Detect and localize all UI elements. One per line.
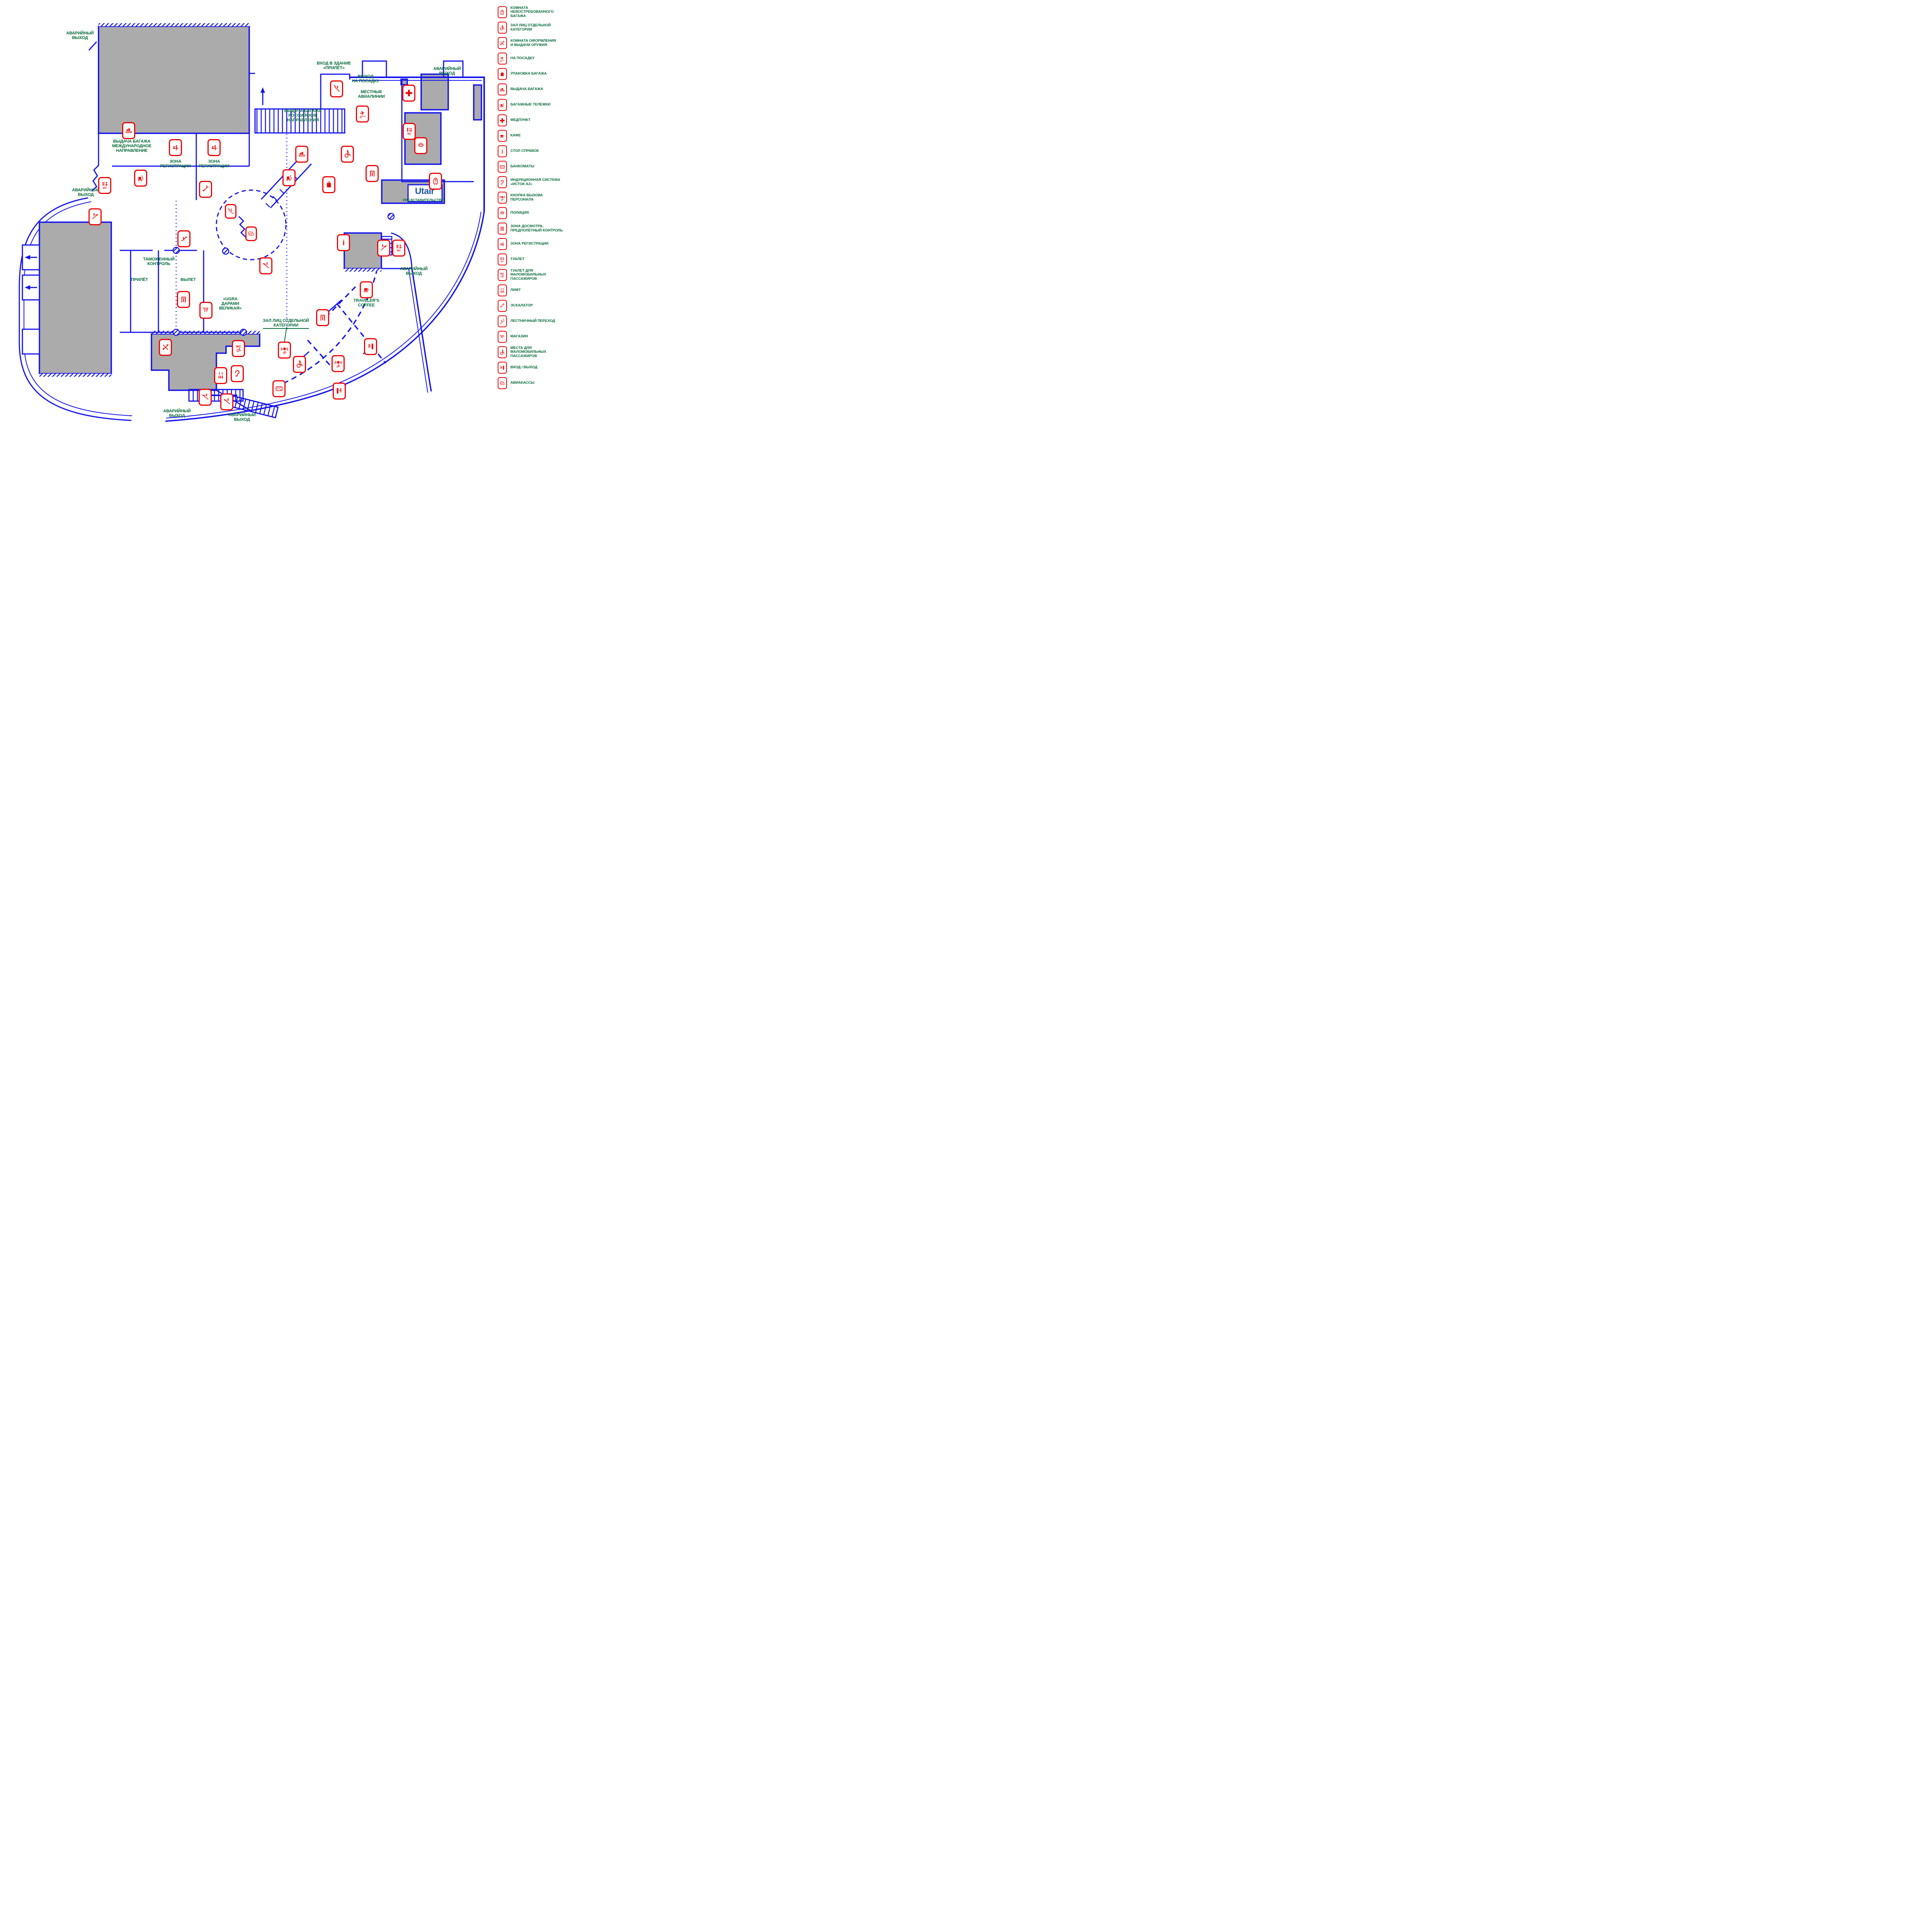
wheelchair-glyph <box>343 148 352 160</box>
escalator-down-icon <box>498 300 507 312</box>
legend-label: ИНДУКЦИОННАЯ СИСТЕМА «ИСТОК А2» <box>510 178 560 186</box>
ugra-shop: «UGRA ДАРАМИ ВЕЛИКАЯ» <box>219 297 241 311</box>
security-gate-icon-right <box>366 165 379 182</box>
plane-boarding-glyph: ✈№ <box>358 107 367 120</box>
utair-office: ПРЕДСТАВИТЕЛЬСТВО <box>403 199 444 202</box>
stairs-icon-bottom-1 <box>199 389 212 406</box>
legend-label: ПОЛИЦИЯ <box>510 211 529 215</box>
security-gate-glyph <box>179 293 189 306</box>
escalator-down-glyph <box>499 301 506 311</box>
exit-right-glyph <box>366 340 376 353</box>
escalator-up-icon <box>177 230 190 247</box>
checkin-icon-2 <box>207 139 221 156</box>
weapon-room-icon <box>159 339 172 356</box>
legend-label: НА ПОСАДКУ <box>510 56 534 60</box>
local-airlines: МЕСТНЫЕ АВИАЛИНИИ <box>358 90 384 99</box>
legend-item-13: КНОПКА ВЫЗОВА ПЕРСОНАЛА <box>498 192 600 204</box>
stairs-up-left-glyph <box>226 206 235 217</box>
legend-label: ЭСКАЛАТОР <box>510 304 533 308</box>
legend-label: КОМНАТА НЕВОСТРЕБОВАННОГО БАГАЖА <box>510 6 554 18</box>
legend-label: ЗАЛ ЛИЦ ОТДЕЛЬНОЙ КАТЕГОРИИ <box>510 24 551 32</box>
travelers-coffee: TRAVELER'S COFFEE <box>354 298 379 308</box>
stairs-left-glyph <box>222 395 232 408</box>
legend-item-4: ✈№НА ПОСАДКУ <box>498 53 600 65</box>
security-gate-glyph <box>499 224 506 233</box>
svg-text:?: ? <box>502 11 503 14</box>
security-person-icon-bottom <box>316 309 329 326</box>
svg-text:?: ? <box>434 180 436 184</box>
baggage-claim-intl-icon <box>122 122 135 139</box>
legend-item-20: ЭСКАЛАТОР <box>498 300 600 312</box>
legend-item-5: УПАКОВКА БАГАЖА <box>498 68 600 80</box>
airport-floor-plan: АВАРИЙНЫЙ ВЫХОДВХОД В ЗДАНИЕ «ПРИЛЁТ»ВЫХ… <box>0 0 603 426</box>
security-gate-icon-departure <box>177 291 190 308</box>
legend-label: ВХОД / ВЫХОД <box>510 366 537 369</box>
legend-item-7: БАГАЖНЫЕ ТЕЛЕЖКИ <box>498 99 600 111</box>
elevator-glyph <box>216 369 226 382</box>
legend-label: ТУАЛЕТ ДЛЯ МАЛОМОБИЛЬНЫХ ПАССАЖИРОВ <box>510 269 546 281</box>
baggage-pack-glyph <box>499 70 506 79</box>
legend-label: БАНКОМАТЫ <box>510 165 534 168</box>
legend-item-10: iСТОЛ СПРАВОК <box>498 145 600 157</box>
baggage-cart-icon <box>498 99 507 111</box>
question-baggage-glyph: ? <box>499 8 506 17</box>
checkin-desk-icon <box>498 238 507 250</box>
emergency-exit-bottom-left: АВАРИЙНЫЙ ВЫХОД <box>163 409 190 418</box>
exit-to-boarding: ВЫХОД НА ПОСАДКУ <box>352 74 379 83</box>
escalator-down-icon <box>199 181 212 198</box>
wheelchair-glyph <box>295 358 304 371</box>
checkin-desk-glyph <box>499 240 506 249</box>
plane-boarding-icon: ✈№ <box>498 53 507 65</box>
svg-text:WC: WC <box>236 345 241 349</box>
left-gates <box>22 245 39 354</box>
shop-cart-glyph <box>201 304 211 316</box>
question-baggage-glyph: ? <box>431 175 440 187</box>
svg-text:CREDIT CARD: CREDIT CARD <box>500 165 504 167</box>
legend-item-11: CREDIT CARDБАНКОМАТЫ <box>498 161 600 173</box>
exit-icon-right <box>364 338 377 355</box>
info-desk-icon: i <box>337 234 350 251</box>
baggage-cart-glyph <box>136 172 146 184</box>
legend-label: ЛЕСТНИЧНЫЙ ПЕРЕХОД <box>510 319 555 323</box>
gun-glyph <box>161 341 170 354</box>
legend-item-25: ✈АВИАКАССЫ <box>498 377 600 389</box>
escalator-down-glyph <box>201 183 211 196</box>
stairs-icon-center <box>225 204 236 219</box>
medical-icon <box>498 114 507 126</box>
plane-boarding-glyph: ✈№ <box>499 54 506 63</box>
legend-item-16: ЗОНА РЕГИСТРАЦИИ <box>498 238 600 250</box>
stairs-icon-left-exit <box>88 208 102 225</box>
escalator-up-glyph <box>179 232 189 245</box>
wheelchair-glyph <box>499 348 506 357</box>
gun-icon <box>498 37 507 49</box>
legend-label: МЕДПУНКТ <box>510 118 531 122</box>
call-button-glyph <box>333 357 343 370</box>
stairs-icon <box>498 315 507 327</box>
vip-hall-callout: ЗАЛ ЛИЦ ОТДЕЛЬНОЙ КАТЕГОРИИ <box>263 318 309 329</box>
legend-label: ЗОНА ДОСМОТРА, ПРЕДПОЛЁТНЫЙ КОНТРОЛЬ <box>510 225 563 233</box>
induction-system-icon <box>231 365 244 382</box>
wc-disabled-glyph: WC <box>499 270 506 280</box>
call-button-icon-2 <box>332 355 345 372</box>
exit-icon-bottom <box>333 383 346 400</box>
credit-card-glyph: CREDIT CARD <box>274 382 284 395</box>
legend-item-24: ВХОД / ВЫХОД <box>498 362 600 374</box>
emergency-exit-right: АВАРИЙНЫЙ ВЫХОД <box>400 267 427 276</box>
stairs-icon-bottom-2 <box>220 393 233 410</box>
wc-icon-right: WC <box>392 240 405 257</box>
legend: ?КОМНАТА НЕВОСТРЕБОВАННОГО БАГАЖАЗАЛ ЛИЦ… <box>498 6 600 393</box>
stairs-icon-rotunda <box>259 257 272 274</box>
svg-text:WC: WC <box>501 260 504 262</box>
legend-label: БАГАЖНЫЕ ТЕЛЕЖКИ <box>510 103 550 107</box>
svg-text:№: № <box>500 60 502 62</box>
svg-text:✈: ✈ <box>500 56 505 61</box>
legend-label: КАФЕ <box>510 134 520 138</box>
customs-control: ТАМОЖЕННЫЙ КОНТРОЛЬ <box>143 257 174 266</box>
legend-label: ВЫДАЧА БАГАЖА <box>510 87 543 91</box>
wc-icon-left: WC <box>98 177 111 194</box>
legend-item-19: ЛИФТ <box>498 284 600 296</box>
emergency-exit-left: АВАРИЙНЫЙ ВЫХОД <box>72 188 99 197</box>
legend-label: УПАКОВКА БАГАЖА <box>510 72 547 76</box>
checkin-desk-glyph <box>209 141 219 154</box>
baggage-carousel-glyph <box>124 124 134 137</box>
legend-item-3: КОМНАТА ОФОРМЛЕНИЯ И ВЫДАЧИ ОРУЖИЯ <box>498 37 600 49</box>
exit-right-glyph <box>499 363 506 373</box>
legend-label: МАГАЗИН <box>510 335 528 338</box>
medical-glyph <box>499 116 506 125</box>
emergency-exit-bottom-center: АВАРИЙНЫЙ ВЫХОД <box>228 413 255 422</box>
svg-text:№: № <box>359 117 362 119</box>
info-glyph: i <box>499 147 506 156</box>
legend-item-17: WCТУАЛЕТ <box>498 253 600 265</box>
call-button-icon-1 <box>278 342 291 359</box>
ear-icon <box>498 176 507 188</box>
departure: ВЫЛЕТ <box>180 277 196 282</box>
svg-text:i: i <box>502 148 503 154</box>
wheelchair-icon <box>498 346 507 358</box>
stairs-glyph <box>499 317 506 326</box>
stairs-right-glyph <box>90 210 100 223</box>
exit-left-glyph <box>335 384 344 397</box>
legend-label: ЗОНА РЕГИСТРАЦИИ <box>510 242 548 246</box>
stairs-left-glyph <box>201 391 210 403</box>
security-gate-glyph <box>318 311 328 324</box>
svg-text:CREDIT CARD: CREDIT CARD <box>276 387 282 388</box>
arrival: ПРИЛЁТ <box>131 277 148 282</box>
svg-text:WC: WC <box>500 273 505 275</box>
checkin-icon-1 <box>169 139 182 156</box>
legend-item-14: ПОЛИЦИЯ <box>498 207 600 219</box>
wc-glyph: WC <box>100 179 110 192</box>
legend-label: МЕСТА ДЛЯ МАЛОМОБИЛЬНЫХ ПАССАЖИРОВ <box>510 346 546 358</box>
avia-ticket-icon-center: ✈ <box>245 226 257 241</box>
baggage-cart-glyph <box>284 171 294 184</box>
legend-item-12: ИНДУКЦИОННАЯ СИСТЕМА «ИСТОК А2» <box>498 176 600 188</box>
legend-label: СТОЛ СПРАВОК <box>510 149 539 153</box>
checkin-desk-glyph <box>171 141 180 154</box>
svg-text:WC: WC <box>397 250 401 252</box>
gun-glyph <box>499 39 506 48</box>
atm-icon-bottom: CREDIT CARD <box>272 380 286 397</box>
wheelchair-icon-bottom <box>293 356 306 373</box>
coffee-glyph <box>499 131 506 141</box>
baggage-cart-icon-left <box>134 170 147 187</box>
legend-label: КНОПКА ВЫЗОВА ПЕРСОНАЛА <box>510 194 543 202</box>
legend-item-8: МЕДПУНКТ <box>498 114 600 126</box>
boarding-icon: ✈№ <box>356 105 369 122</box>
stairs-up-left-glyph <box>332 82 342 95</box>
call-button-glyph <box>280 344 289 356</box>
wc-disabled-icon: WC <box>498 269 507 281</box>
ear-glyph <box>233 367 242 380</box>
legend-label: КОМНАТА ОФОРМЛЕНИЯ И ВЫДАЧИ ОРУЖИЯ <box>510 39 556 47</box>
baggage-pack-glyph <box>324 178 334 191</box>
legend-item-18: WCТУАЛЕТ ДЛЯ МАЛОМОБИЛЬНЫХ ПАССАЖИРОВ <box>498 269 600 281</box>
security-gate-glyph <box>367 167 377 180</box>
elevator-icon <box>214 367 227 384</box>
wc-icon-top-right: WC <box>403 123 416 140</box>
question-baggage-icon: ? <box>498 6 507 18</box>
legend-label: АВИАКАССЫ <box>510 381 534 385</box>
svg-text:i: i <box>342 239 344 247</box>
legend-item-22: МАГАЗИН <box>498 331 600 343</box>
legend-item-9: КАФЕ <box>498 130 600 142</box>
ear-glyph <box>499 178 506 187</box>
legend-item-23: МЕСТА ДЛЯ МАЛОМОБИЛЬНЫХ ПАССАЖИРОВ <box>498 346 600 358</box>
avia-ticket-glyph: ✈ <box>499 379 506 388</box>
baggage-cart-icon-center <box>282 169 296 186</box>
credit-card-icon: CREDIT CARD <box>498 161 507 173</box>
baggage-carousel-glyph <box>297 148 307 160</box>
police-glyph <box>416 139 426 152</box>
wheelchair-icon-top <box>341 146 354 163</box>
shop-icon <box>199 302 213 319</box>
stairs-icon-right <box>377 240 390 257</box>
baggage-carousel-icon <box>498 83 507 95</box>
wheelchair-icon <box>498 22 507 34</box>
stairs-left-glyph <box>261 259 271 272</box>
emergency-exit-top-right: АВАРИЙНЫЙ ВЫХОД <box>433 66 461 76</box>
police-glyph <box>499 209 506 218</box>
baggage-claim-domestic: ВЫДАЧА БАГАЖА РОССИЙСКИЕ НАПРАВЛЕНИЯ <box>284 109 322 122</box>
up-arrow <box>260 87 265 105</box>
stairs-right-glyph <box>379 242 389 254</box>
wc-icon: WC <box>498 253 507 265</box>
legend-item-21: ЛЕСТНИЧНЫЙ ПЕРЕХОД <box>498 315 600 327</box>
legend-label: ТУАЛЕТ <box>510 257 524 261</box>
svg-text:WC: WC <box>103 187 107 190</box>
legend-item-1: ?КОМНАТА НЕВОСТРЕБОВАННОГО БАГАЖА <box>498 6 600 18</box>
checkin-zone-2: ЗОНА РЕГИСТРАЦИИ <box>199 159 229 168</box>
medical-icon <box>402 85 415 102</box>
wc-disabled-glyph: WC <box>234 342 243 355</box>
info-icon: i <box>498 145 507 157</box>
wheelchair-glyph <box>499 23 506 32</box>
legend-label: ЛИФТ <box>510 288 521 292</box>
baggage-claim-rus-icon <box>295 146 308 163</box>
shop-cart-glyph <box>499 332 506 342</box>
wc-glyph: WC <box>394 242 404 254</box>
exit-right-icon <box>498 362 507 374</box>
police-icon <box>414 137 427 154</box>
svg-text:WC: WC <box>407 133 412 136</box>
credit-card-glyph: CREDIT CARD <box>499 162 506 172</box>
wc-glyph: WC <box>405 125 414 138</box>
legend-item-2: ЗАЛ ЛИЦ ОТДЕЛЬНОЙ КАТЕГОРИИ <box>498 22 600 34</box>
call-button-glyph <box>499 193 506 202</box>
avia-ticket-icon: ✈ <box>498 377 507 389</box>
shop-cart-icon <box>498 331 507 343</box>
wc-disabled-icon: WC <box>232 340 245 357</box>
emergency-exit-top-left: АВАРИЙНЫЙ ВЫХОД <box>66 31 94 40</box>
legend-item-6: ВЫДАЧА БАГАЖА <box>498 83 600 95</box>
security-gate-icon <box>498 223 507 235</box>
coffee-glyph <box>362 283 371 296</box>
wc-glyph: WC <box>499 255 506 264</box>
service-halls <box>39 26 481 390</box>
elevator-icon <box>498 284 507 296</box>
coffee-icon <box>360 281 373 298</box>
coffee-icon <box>498 130 507 142</box>
baggage-pack-icon <box>322 176 335 193</box>
baggage-pack-icon <box>498 68 507 80</box>
avia-ticket-glyph: ✈ <box>247 228 255 239</box>
svg-text:✈: ✈ <box>359 110 365 116</box>
elevator-glyph <box>499 286 506 295</box>
unclaimed-baggage-icon: ? <box>429 173 442 190</box>
entrance-arrival: ВХОД В ЗДАНИЕ «ПРИЛЁТ» <box>317 61 351 70</box>
legend-item-15: ЗОНА ДОСМОТРА, ПРЕДПОЛЁТНЫЙ КОНТРОЛЬ <box>498 223 600 235</box>
info-glyph: i <box>339 236 349 249</box>
police-icon <box>498 207 507 219</box>
baggage-claim-international: ВЫДАЧА БАГАЖА МЕЖДУНАРОДНОЕ НАПРАВЛЕНИЕ <box>112 139 151 153</box>
call-button-icon <box>498 192 507 204</box>
stairs-icon-top-bridge <box>330 80 343 97</box>
baggage-cart-glyph <box>499 100 506 110</box>
checkin-zone-1: ЗОНА РЕГИСТРАЦИИ <box>160 159 190 168</box>
baggage-carousel-glyph <box>499 85 506 94</box>
medical-glyph <box>404 87 414 99</box>
